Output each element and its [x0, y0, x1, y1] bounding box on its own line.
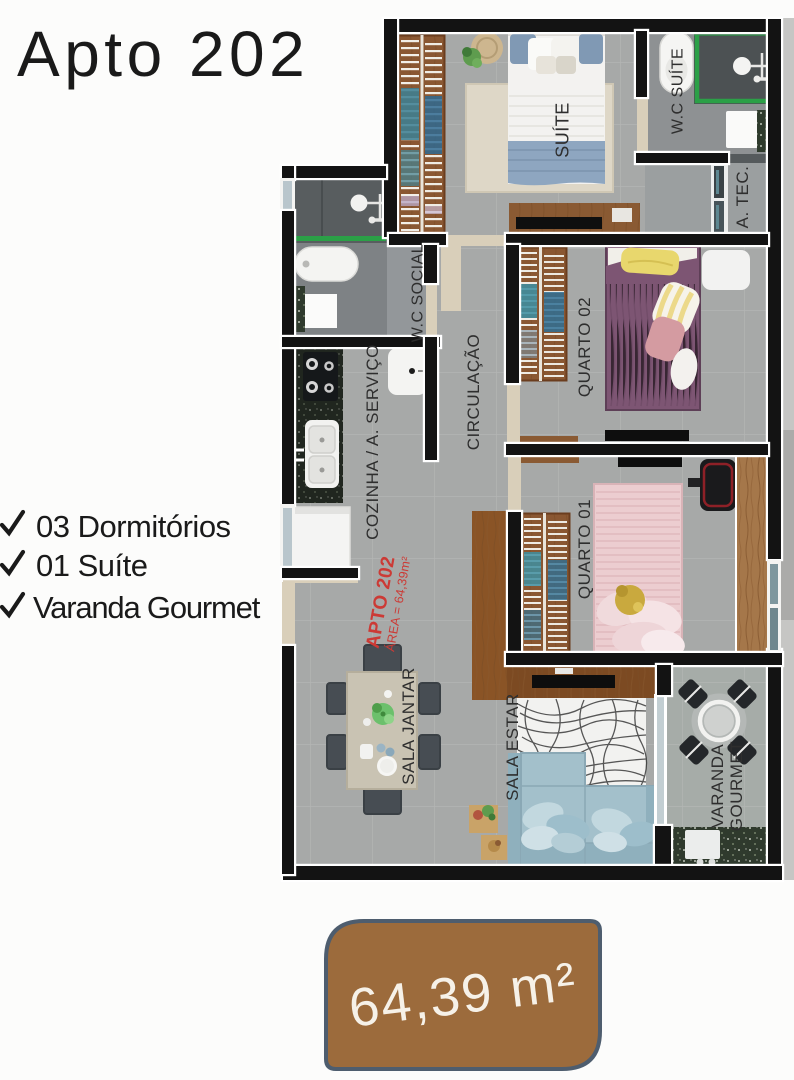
- svg-text:01 Suíte: 01 Suíte: [36, 548, 147, 583]
- svg-text:W.C SUÍTE: W.C SUÍTE: [668, 48, 687, 134]
- svg-text:CIRCULAÇÃO: CIRCULAÇÃO: [464, 334, 483, 450]
- svg-text:W.C SOCIAL: W.C SOCIAL: [410, 244, 427, 342]
- svg-text:VARANDA: VARANDA: [708, 744, 727, 829]
- svg-text:QUARTO 01: QUARTO 01: [575, 499, 594, 599]
- svg-text:SUÍTE: SUÍTE: [552, 102, 572, 158]
- svg-text:GOURMET: GOURMET: [727, 741, 746, 831]
- svg-text:03 Dormitórios: 03 Dormitórios: [36, 509, 231, 544]
- svg-text:A. TEC.: A. TEC.: [733, 166, 752, 229]
- svg-text:Apto 202: Apto 202: [17, 18, 309, 90]
- svg-text:QUARTO 02: QUARTO 02: [575, 297, 594, 397]
- svg-text:SALA JANTAR: SALA JANTAR: [399, 667, 418, 785]
- svg-text:SALA ESTAR: SALA ESTAR: [503, 693, 522, 801]
- svg-text:COZINHA / A. SERVIÇO: COZINHA / A. SERVIÇO: [363, 344, 382, 540]
- svg-text:Varanda Gourmet: Varanda Gourmet: [33, 590, 261, 625]
